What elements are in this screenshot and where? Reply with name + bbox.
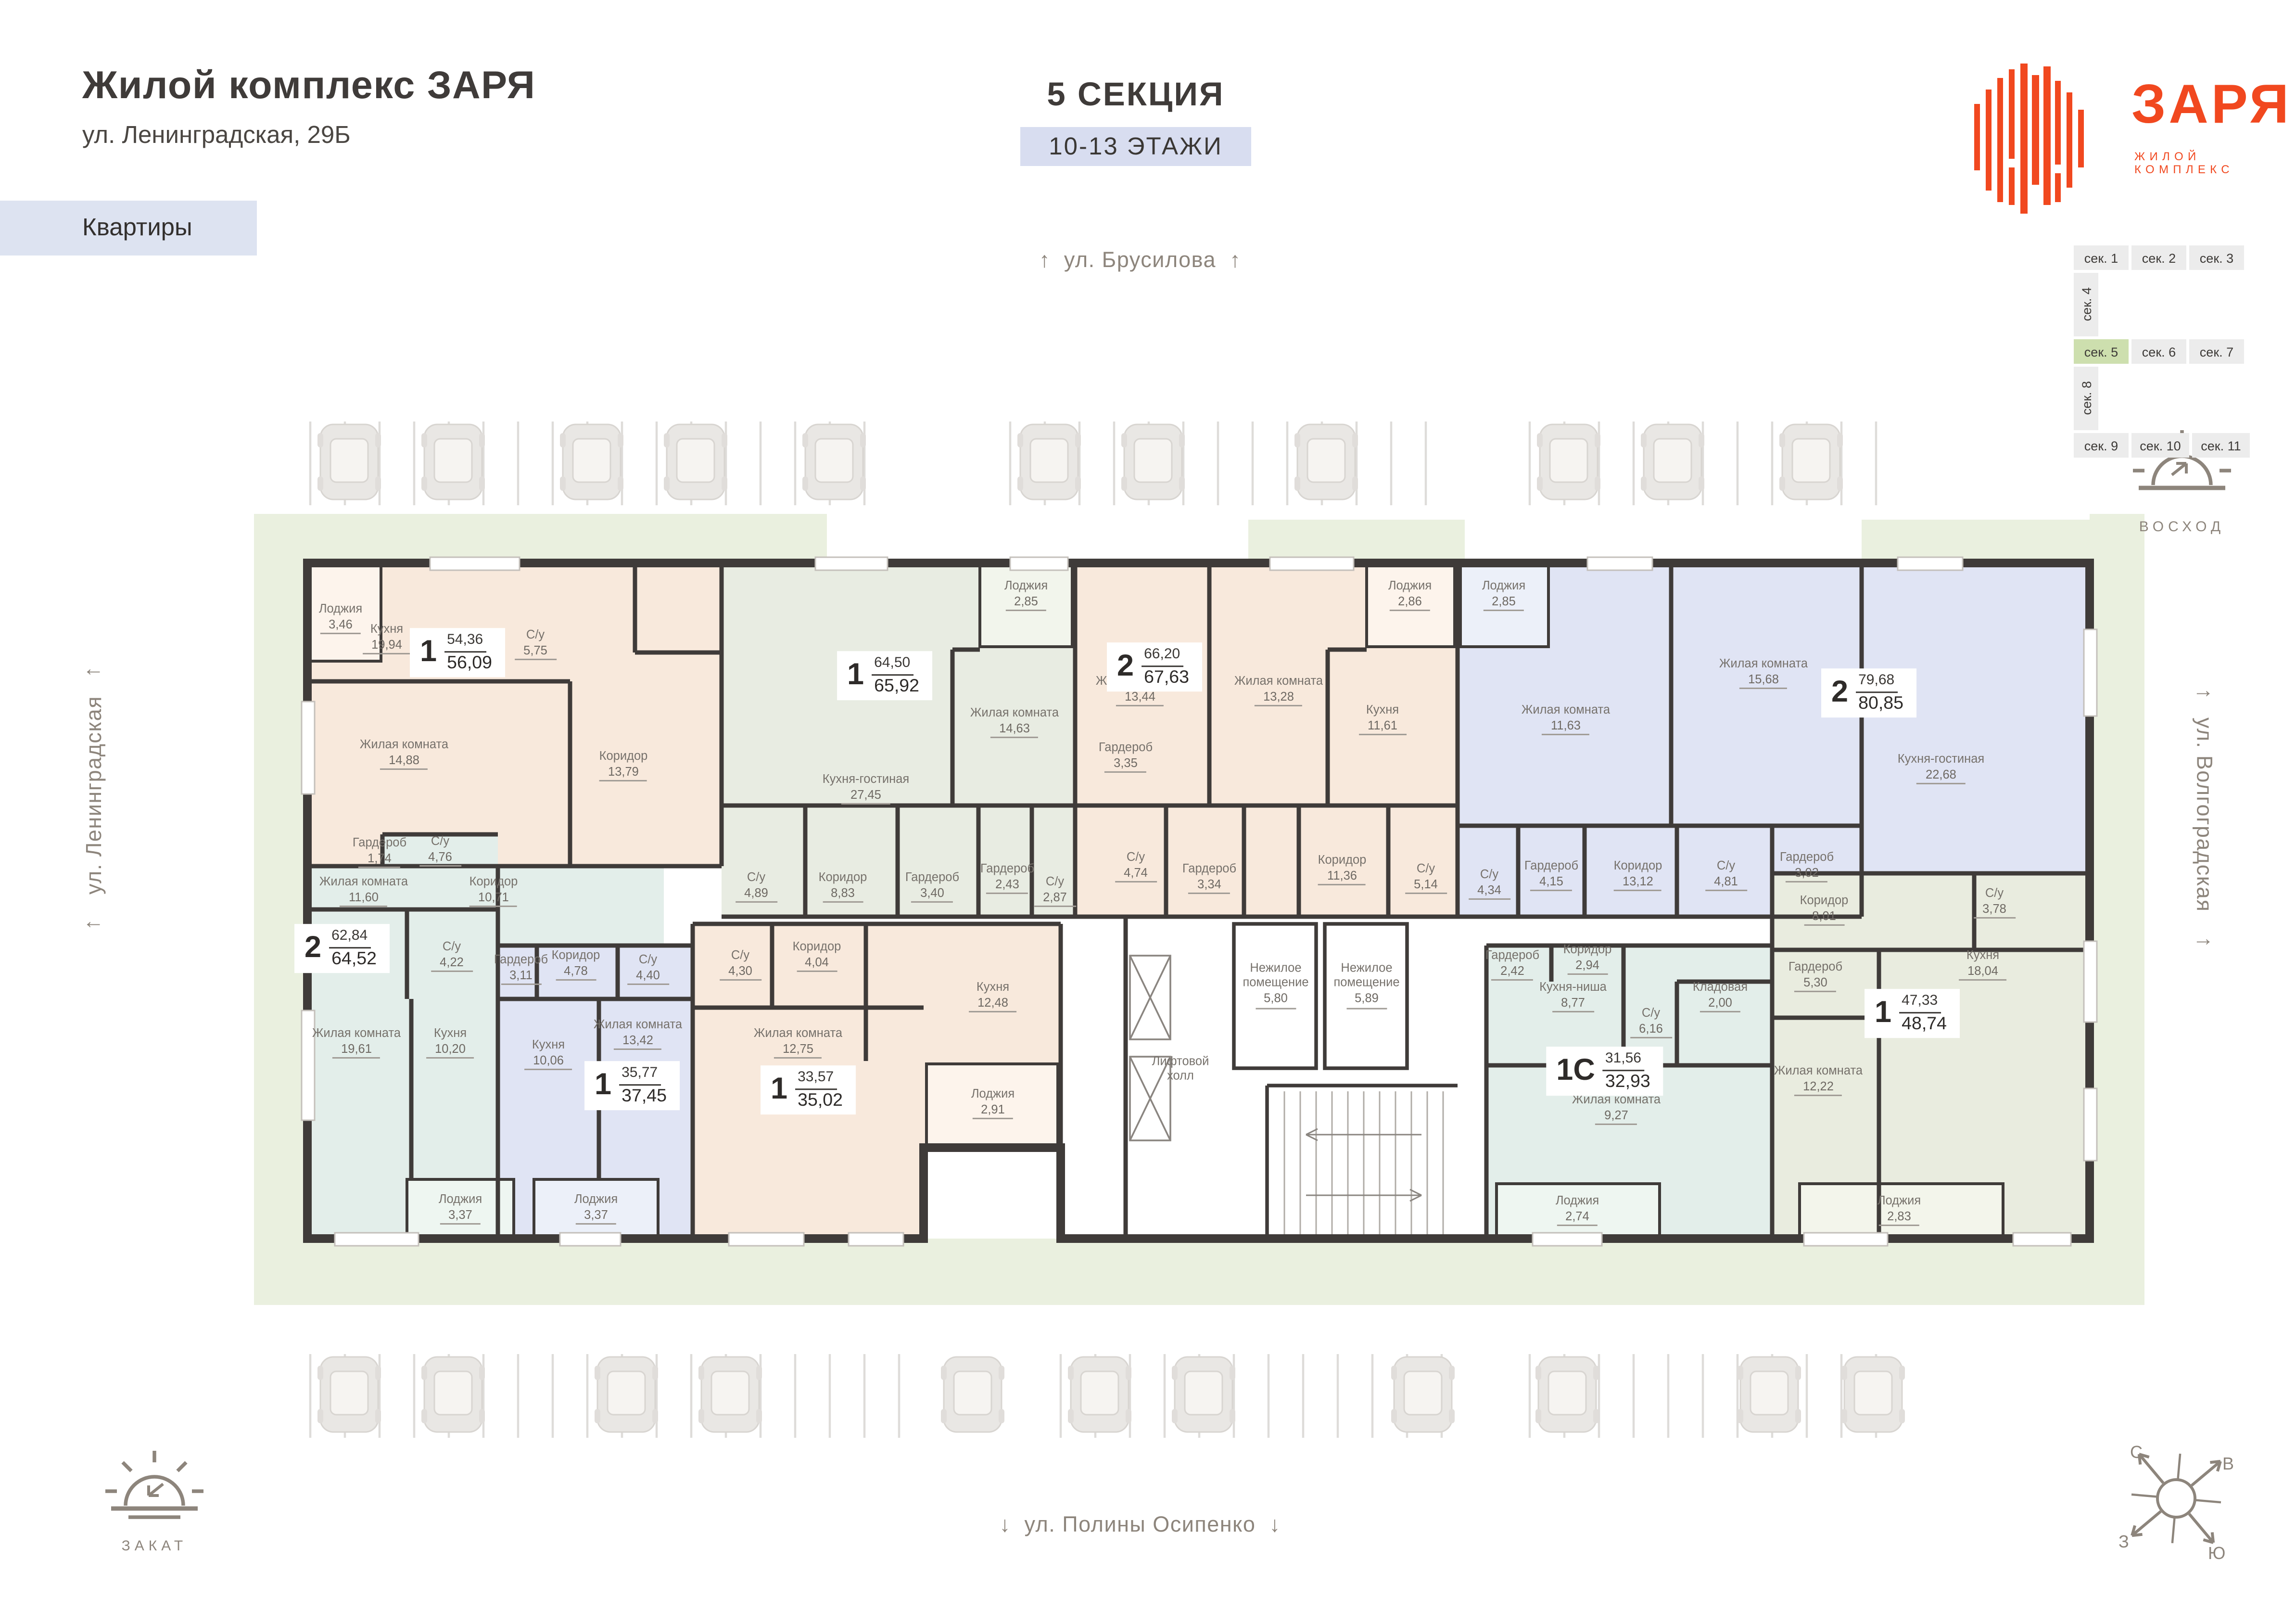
apartment-area-total: 64,52 <box>329 948 380 969</box>
room-label: Гардероб2,42 <box>1485 947 1539 981</box>
sunset-label: ЗАКАТ <box>97 1539 212 1555</box>
car-icon <box>317 1357 381 1432</box>
apt-1-6592-badge[interactable]: 1 64,50 65,92 <box>837 651 932 700</box>
room-label: С/у4,89 <box>736 870 777 903</box>
street-osipenko: ↓ ул. Полины Осипенко ↓ <box>924 1513 1357 1537</box>
room-label: С/у5,75 <box>515 627 556 661</box>
section-chip-label: сек. 3 <box>2200 251 2233 265</box>
room-label: Лоджия3,37 <box>574 1191 618 1225</box>
section-chip-label: сек. 10 <box>2140 438 2181 453</box>
car-icon <box>1294 424 1358 499</box>
logo-name: ЗАРЯ <box>2131 75 2292 137</box>
room-label: Лоджия2,85 <box>1004 578 1048 612</box>
room-label: Кладовая2,00 <box>1693 979 1748 1013</box>
apt-2-6452-badge[interactable]: 2 62,84 64,52 <box>294 924 390 973</box>
section-chip-8[interactable]: сек. 8 <box>2074 367 2098 430</box>
room-label: С/у4,81 <box>1705 858 1747 892</box>
floorplan-page: С В З Ю Жилой комплекс ЗАРЯ ул. Ленингра… <box>0 0 2296 1624</box>
section-chip-5[interactable]: сек. 5 <box>2074 339 2129 364</box>
section-chip-11[interactable]: сек. 11 <box>2192 433 2250 458</box>
room-label: Лоджия3,37 <box>439 1191 482 1225</box>
apartment-type: 1 <box>847 658 864 693</box>
room-label: Кухня-гостиная27,45 <box>823 771 909 805</box>
apartment-area-living: 33,57 <box>795 1070 837 1089</box>
section-chip-1[interactable]: сек. 1 <box>2074 245 2129 270</box>
street-volgogradskaya: → ул. Волгоградская → <box>2153 678 2254 1112</box>
room-label: Лоджия2,85 <box>1482 578 1525 612</box>
apt-1-3502-badge[interactable]: 1 33,57 35,02 <box>761 1065 856 1114</box>
car-icon <box>1537 424 1600 499</box>
street-brusilova: ↑ ул. Брусилова ↑ <box>952 248 1328 273</box>
room-label: Лоджия2,74 <box>1556 1193 1599 1227</box>
car-icon <box>941 1357 1004 1432</box>
section-chip-label: сек. 8 <box>2079 382 2093 415</box>
section-chip-label: сек. 2 <box>2142 251 2176 265</box>
car-icon <box>317 424 381 499</box>
room-label: Гардероб2,43 <box>980 861 1034 895</box>
room-label: С/у4,34 <box>1469 867 1510 900</box>
apartment-area-total: 35,02 <box>795 1089 846 1110</box>
section-chip-label: сек. 4 <box>2079 288 2093 321</box>
room-label: Гардероб3,11 <box>494 952 548 985</box>
apartment-area-total: 37,45 <box>619 1085 670 1106</box>
room-label: С/у4,30 <box>720 947 761 981</box>
apartment-type: 1 <box>595 1068 611 1103</box>
room-label: Гардероб1,74 <box>353 835 406 869</box>
apartment-area-living: 62,84 <box>329 928 370 948</box>
apartment-area-living: 64,50 <box>871 655 913 675</box>
section-chip-4[interactable]: сек. 4 <box>2074 273 2098 336</box>
car-icon <box>560 424 623 499</box>
car-icon <box>1121 424 1185 499</box>
section-chip-9[interactable]: сек. 9 <box>2074 433 2129 458</box>
street-leningradskaya: ← ул. Ленинградская ← <box>43 657 144 1263</box>
car-icon <box>1641 424 1704 499</box>
car-icon <box>1068 1357 1131 1432</box>
apartment-area-living: 66,20 <box>1141 647 1183 666</box>
room-label: Жилая комната12,22 <box>1774 1063 1863 1097</box>
section-chip-label: сек. 5 <box>2084 345 2118 359</box>
common-room-label: Нежилое помещение5,80 <box>1243 960 1308 1009</box>
room-label: Лоджия2,83 <box>1877 1193 1921 1227</box>
room-label: С/у2,87 <box>1034 874 1076 908</box>
section-chip-10[interactable]: сек. 10 <box>2131 433 2189 458</box>
room-label: Кухня12,48 <box>969 979 1017 1013</box>
room-label: Жилая комната13,42 <box>594 1017 682 1050</box>
room-label: Жилая комната13,28 <box>1234 673 1323 707</box>
room-label: Кухня10,06 <box>524 1037 572 1071</box>
section-chip-3[interactable]: сек. 3 <box>2189 245 2244 270</box>
room-label: Коридор8,83 <box>819 870 867 903</box>
room-label: Кухня11,61 <box>1359 702 1406 736</box>
car-icon <box>1391 1357 1455 1432</box>
room-label: Жилая комната19,61 <box>312 1025 401 1059</box>
section-chip-label: сек. 1 <box>2084 251 2118 265</box>
room-label: Кухня10,20 <box>426 1025 474 1059</box>
apartment-area-total: 80,85 <box>1855 692 1906 713</box>
car-icon <box>1017 424 1081 499</box>
svg-text:Ю: Ю <box>2208 1543 2225 1563</box>
room-label: Жилая комната11,60 <box>319 874 408 908</box>
room-label: Гардероб4,15 <box>1524 858 1578 892</box>
page-title: Жилой комплекс ЗАРЯ <box>82 64 535 108</box>
room-label: С/у5,14 <box>1405 861 1446 895</box>
room-label: Лоджия2,91 <box>971 1086 1015 1120</box>
car-icon <box>595 1357 658 1432</box>
apartment-area-total: 56,09 <box>444 652 495 673</box>
room-label: Кухня-гостиная22,68 <box>1898 751 1984 785</box>
apt-2-6763-badge[interactable]: 2 66,20 67,63 <box>1107 642 1202 691</box>
tab-apartments[interactable]: Квартиры <box>0 201 257 256</box>
page-subtitle: ул. Ленинградская, 29Б <box>82 121 351 150</box>
common-room-label: Нежилое помещение5,89 <box>1333 960 1399 1009</box>
room-label: Лоджия2,86 <box>1388 578 1432 612</box>
room-label: Коридор13,79 <box>599 748 648 782</box>
apartment-type: 2 <box>304 931 321 966</box>
logo-icon <box>1974 64 2084 214</box>
room-label: Гардероб5,30 <box>1789 959 1842 993</box>
room-label: Гардероб3,35 <box>1099 740 1153 773</box>
room-label: Коридор13,12 <box>1614 858 1662 892</box>
room-label: Жилая комната14,88 <box>360 737 448 770</box>
room-label: Жилая комната14,63 <box>970 705 1059 739</box>
car-icon <box>421 1357 485 1432</box>
room-label: Коридор10,71 <box>469 874 518 908</box>
room-label: Кухня19,94 <box>363 621 411 655</box>
apt-2-8085-badge[interactable]: 2 79,68 80,85 <box>1821 668 1916 717</box>
room-label: С/у4,74 <box>1115 849 1156 883</box>
apartment-area-living: 35,77 <box>619 1065 660 1085</box>
room-label: С/у6,16 <box>1630 1005 1672 1039</box>
apartment-area-total: 67,63 <box>1141 666 1192 687</box>
room-label: Кухня18,04 <box>1959 947 2007 981</box>
apartment-type: 1С <box>1556 1054 1595 1088</box>
car-icon <box>1779 424 1843 499</box>
logo-tagline: ЖИЛОЙ КОМПЛЕКС <box>2134 150 2296 176</box>
section-chip-label: сек. 9 <box>2084 438 2118 453</box>
room-label: С/у4,76 <box>419 833 461 867</box>
car-icon <box>1841 1357 1905 1432</box>
apartment-area-total: 48,74 <box>1899 1013 1950 1034</box>
room-label: Гардероб3,34 <box>1182 861 1236 895</box>
room-label: Коридор8,01 <box>1800 893 1849 926</box>
room-label: Кухня-ниша8,77 <box>1539 979 1607 1013</box>
sunrise-label: ВОСХОД <box>2124 520 2240 536</box>
svg-text:В: В <box>2222 1454 2234 1473</box>
car-icon <box>802 424 866 499</box>
car-icon <box>698 1357 762 1432</box>
apt-1-4874-badge[interactable]: 1 47,33 48,74 <box>1865 989 1960 1038</box>
section-chip-7[interactable]: сек. 7 <box>2189 339 2244 364</box>
svg-text:С: С <box>2130 1442 2143 1462</box>
sunset-icon <box>105 1451 203 1517</box>
apt-1-3745-badge[interactable]: 1 35,77 37,45 <box>584 1061 680 1110</box>
floorplan-drawing: С В З Ю <box>0 0 2296 1624</box>
apartment-area-living: 54,36 <box>444 632 486 652</box>
car-icon <box>421 424 485 499</box>
section-chip-label: сек. 7 <box>2200 345 2233 359</box>
car-icon <box>1172 1357 1235 1432</box>
room-label: Коридор2,94 <box>1563 942 1612 975</box>
apartment-area-living: 31,56 <box>1602 1051 1644 1071</box>
room-label: Гардероб3,40 <box>905 870 959 903</box>
car-icon <box>1738 1357 1801 1432</box>
apartment-area-living: 47,33 <box>1899 993 1941 1013</box>
room-label: С/у4,22 <box>431 939 472 972</box>
svg-text:З: З <box>2118 1532 2129 1551</box>
section-chip-2[interactable]: сек. 2 <box>2131 245 2186 270</box>
room-label: С/у3,78 <box>1974 885 2015 919</box>
common-room-label: Лифтовой холл <box>1152 1053 1209 1083</box>
room-label: Лоджия3,46 <box>319 601 362 635</box>
section-title: 5 СЕКЦИЯ <box>948 75 1323 114</box>
apartment-area-living: 79,68 <box>1855 673 1897 692</box>
section-chip-label: сек. 11 <box>2201 438 2241 453</box>
apt-1-5609-badge[interactable]: 1 54,36 56,09 <box>410 628 505 677</box>
apt-1s-3293-badge[interactable]: 1С 31,56 32,93 <box>1546 1047 1663 1096</box>
compass-icon <box>2095 1417 2258 1580</box>
room-label: Коридор4,78 <box>552 947 600 981</box>
section-chip-label: сек. 6 <box>2142 345 2176 359</box>
apartment-type: 1 <box>1875 996 1891 1031</box>
apartment-type: 1 <box>771 1073 787 1107</box>
parking-row-top <box>310 422 1876 505</box>
car-icon <box>664 424 727 499</box>
car-icon <box>1535 1357 1599 1432</box>
apartment-type: 2 <box>1831 676 1848 710</box>
room-label: Коридор11,36 <box>1318 852 1367 886</box>
room-label: С/у4,40 <box>627 952 669 985</box>
apartment-area-total: 65,92 <box>871 675 922 696</box>
section-chip-6[interactable]: сек. 6 <box>2131 339 2186 364</box>
room-label: Гардероб3,02 <box>1780 849 1834 883</box>
apartment-area-total: 32,93 <box>1602 1071 1653 1091</box>
room-label: Коридор4,04 <box>793 939 841 972</box>
floors-chip[interactable]: 10-13 ЭТАЖИ <box>1020 127 1251 166</box>
apartment-type: 2 <box>1117 650 1134 684</box>
room-label: Жилая комната12,75 <box>754 1025 842 1059</box>
apartment-type: 1 <box>420 635 437 670</box>
room-label: Жилая комната9,27 <box>1572 1092 1661 1125</box>
room-label: Жилая комната15,68 <box>1719 656 1808 690</box>
room-label: Жилая комната11,63 <box>1522 702 1610 736</box>
